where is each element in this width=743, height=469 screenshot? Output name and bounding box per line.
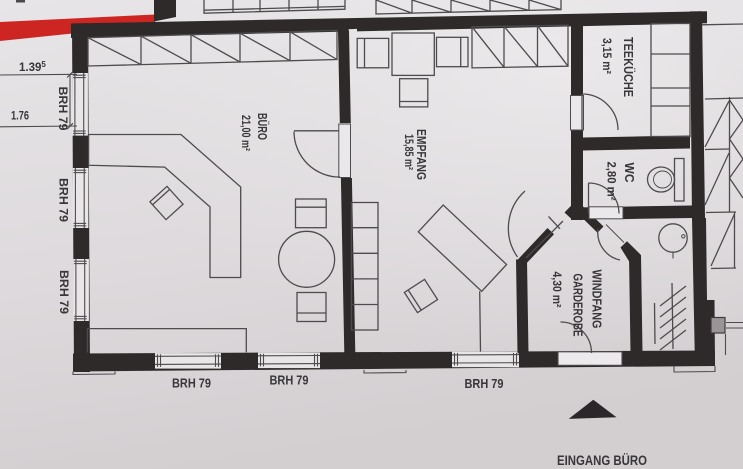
svg-text:WC: WC — [622, 163, 637, 184]
svg-text:BRH 79: BRH 79 — [172, 377, 211, 391]
svg-text:EMPFANG: EMPFANG — [414, 129, 429, 180]
svg-text:2,80 m²: 2,80 m² — [604, 162, 616, 201]
svg-text:15,85 m²: 15,85 m² — [402, 134, 414, 170]
svg-text:BRH 79: BRH 79 — [270, 374, 309, 388]
svg-text:EINGANG BÜRO: EINGANG BÜRO — [557, 452, 647, 468]
svg-text:BRH 79: BRH 79 — [57, 270, 71, 314]
svg-text:BRH 79: BRH 79 — [56, 87, 70, 131]
svg-text:3,15 m²: 3,15 m² — [600, 38, 612, 74]
svg-text:BRH 79: BRH 79 — [465, 377, 504, 391]
svg-text:TEEKÜCHE: TEEKÜCHE — [621, 37, 636, 97]
svg-text:1.76: 1.76 — [11, 111, 29, 123]
svg-text:4,30 m²: 4,30 m² — [550, 272, 562, 308]
svg-text:GARDEROBE: GARDEROBE — [571, 274, 586, 337]
svg-text:BRH 79: BRH 79 — [56, 178, 70, 222]
svg-text:WINDFANG: WINDFANG — [590, 270, 605, 329]
svg-text:21,00 m²: 21,00 m² — [239, 115, 251, 151]
svg-text:BÜRO: BÜRO — [255, 113, 270, 140]
